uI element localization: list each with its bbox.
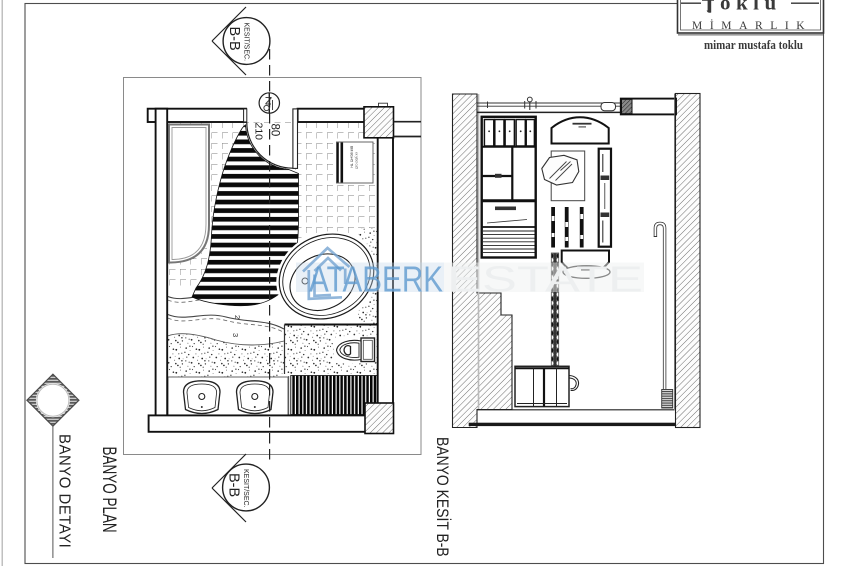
svg-text:BM 80x45 TH: BM 80x45 TH — [350, 146, 354, 168]
svg-text:KESIT/SEC.: KESIT/SEC. — [243, 23, 250, 62]
svg-text:MİMARLIK: MİMARLIK — [692, 18, 812, 32]
svg-text:ATABERK: ATABERK — [309, 259, 443, 300]
svg-text:BANYO PLAN: BANYO PLAN — [98, 447, 119, 533]
svg-text:xx yGd ca5: xx yGd ca5 — [355, 152, 359, 169]
svg-text:mimar mustafa toklu: mimar mustafa toklu — [704, 37, 803, 52]
svg-text:BANYO DETAYI: BANYO DETAYI — [55, 434, 73, 548]
svg-text:oklu: oklu — [720, 0, 782, 15]
svg-text:2: 2 — [233, 315, 242, 319]
svg-text:B-B: B-B — [226, 27, 242, 51]
svg-text:80: 80 — [269, 124, 281, 137]
svg-text:ESTATE: ESTATE — [447, 259, 643, 300]
svg-text:KESIT/SEC.: KESIT/SEC. — [242, 469, 249, 508]
svg-text:BANYO KESİT B-B: BANYO KESİT B-B — [433, 437, 453, 557]
svg-text:3: 3 — [231, 333, 240, 337]
svg-text:210: 210 — [253, 123, 265, 141]
svg-text:B-B: B-B — [226, 473, 242, 497]
